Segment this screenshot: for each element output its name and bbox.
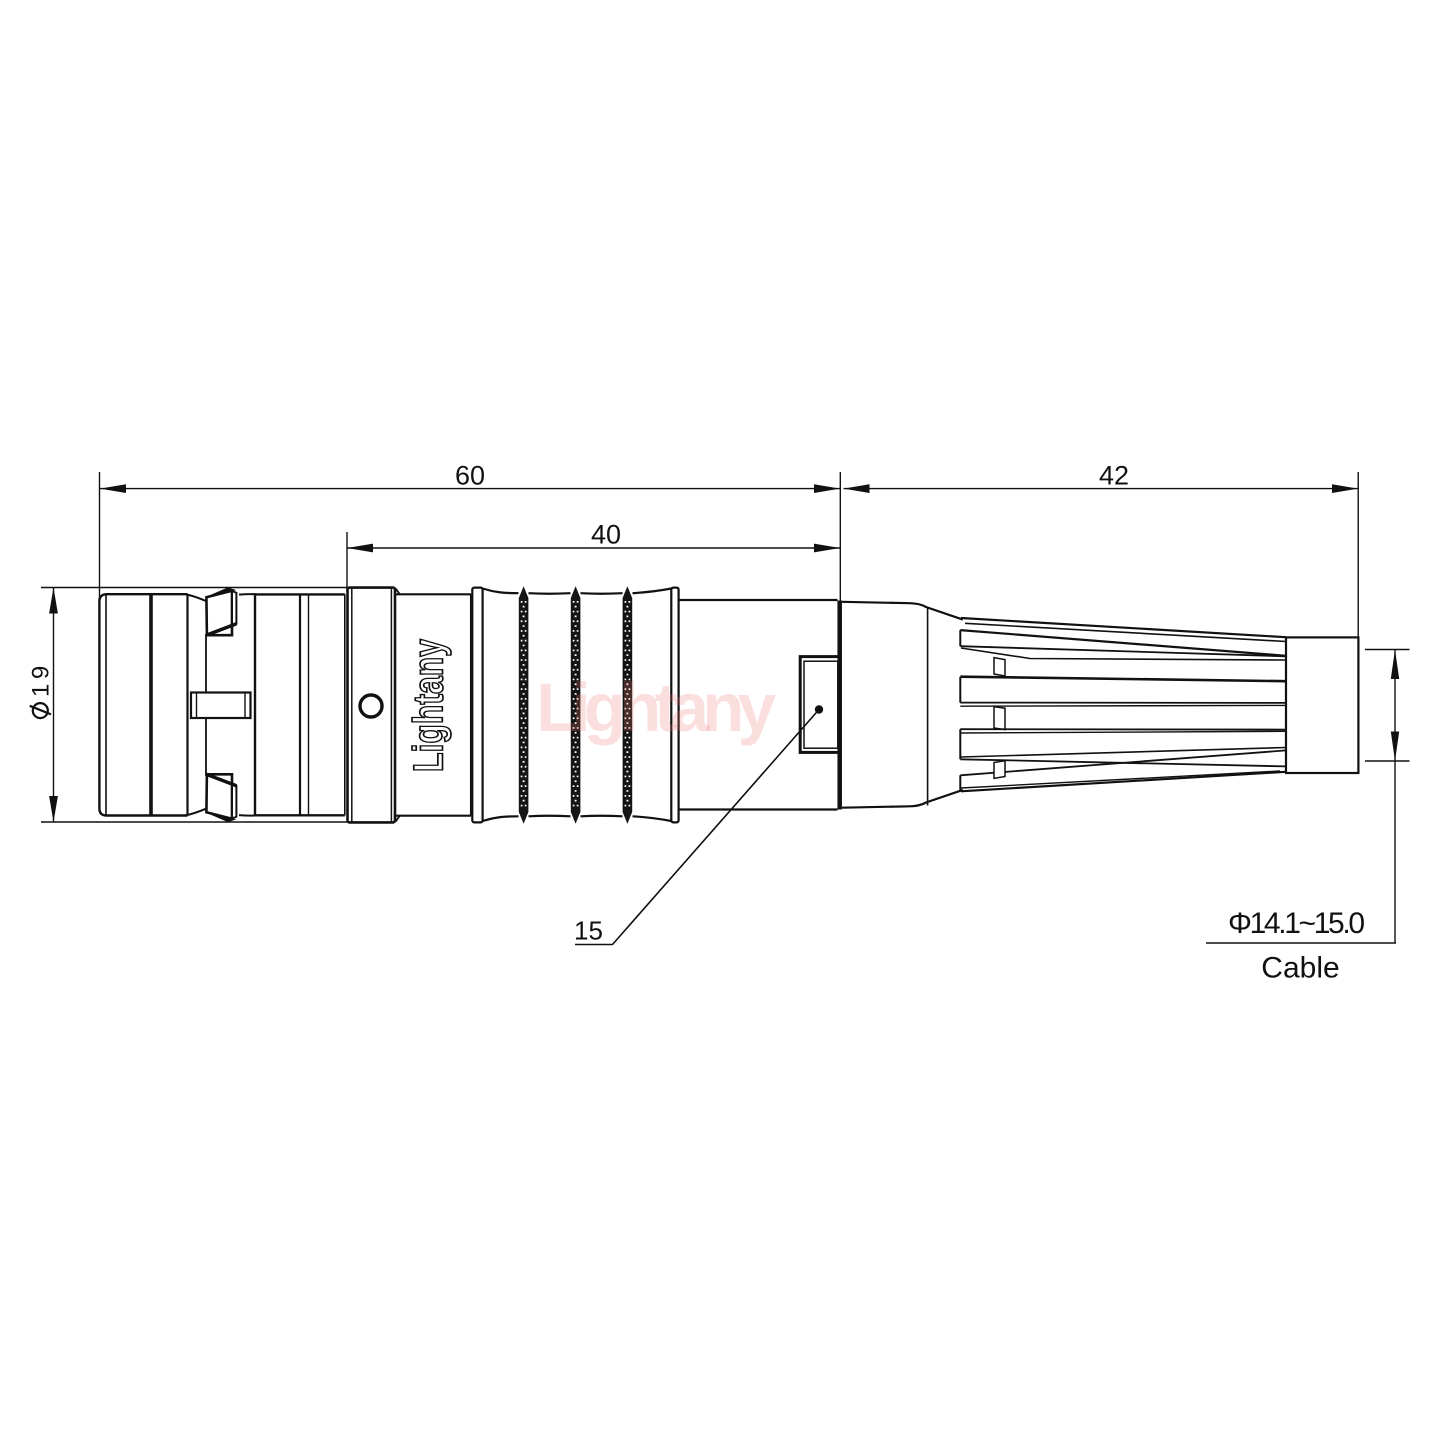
svg-text:15: 15: [574, 916, 603, 946]
svg-text:Lightany: Lightany: [405, 639, 452, 772]
svg-text:42: 42: [1099, 461, 1129, 491]
svg-text:Cable: Cable: [1261, 952, 1339, 985]
svg-text:Φ14.1~15.0: Φ14.1~15.0: [1228, 907, 1365, 940]
svg-text:40: 40: [591, 520, 621, 550]
svg-text:60: 60: [455, 461, 485, 491]
svg-text:19: 19: [28, 661, 55, 697]
svg-text:Lightany: Lightany: [536, 669, 776, 746]
